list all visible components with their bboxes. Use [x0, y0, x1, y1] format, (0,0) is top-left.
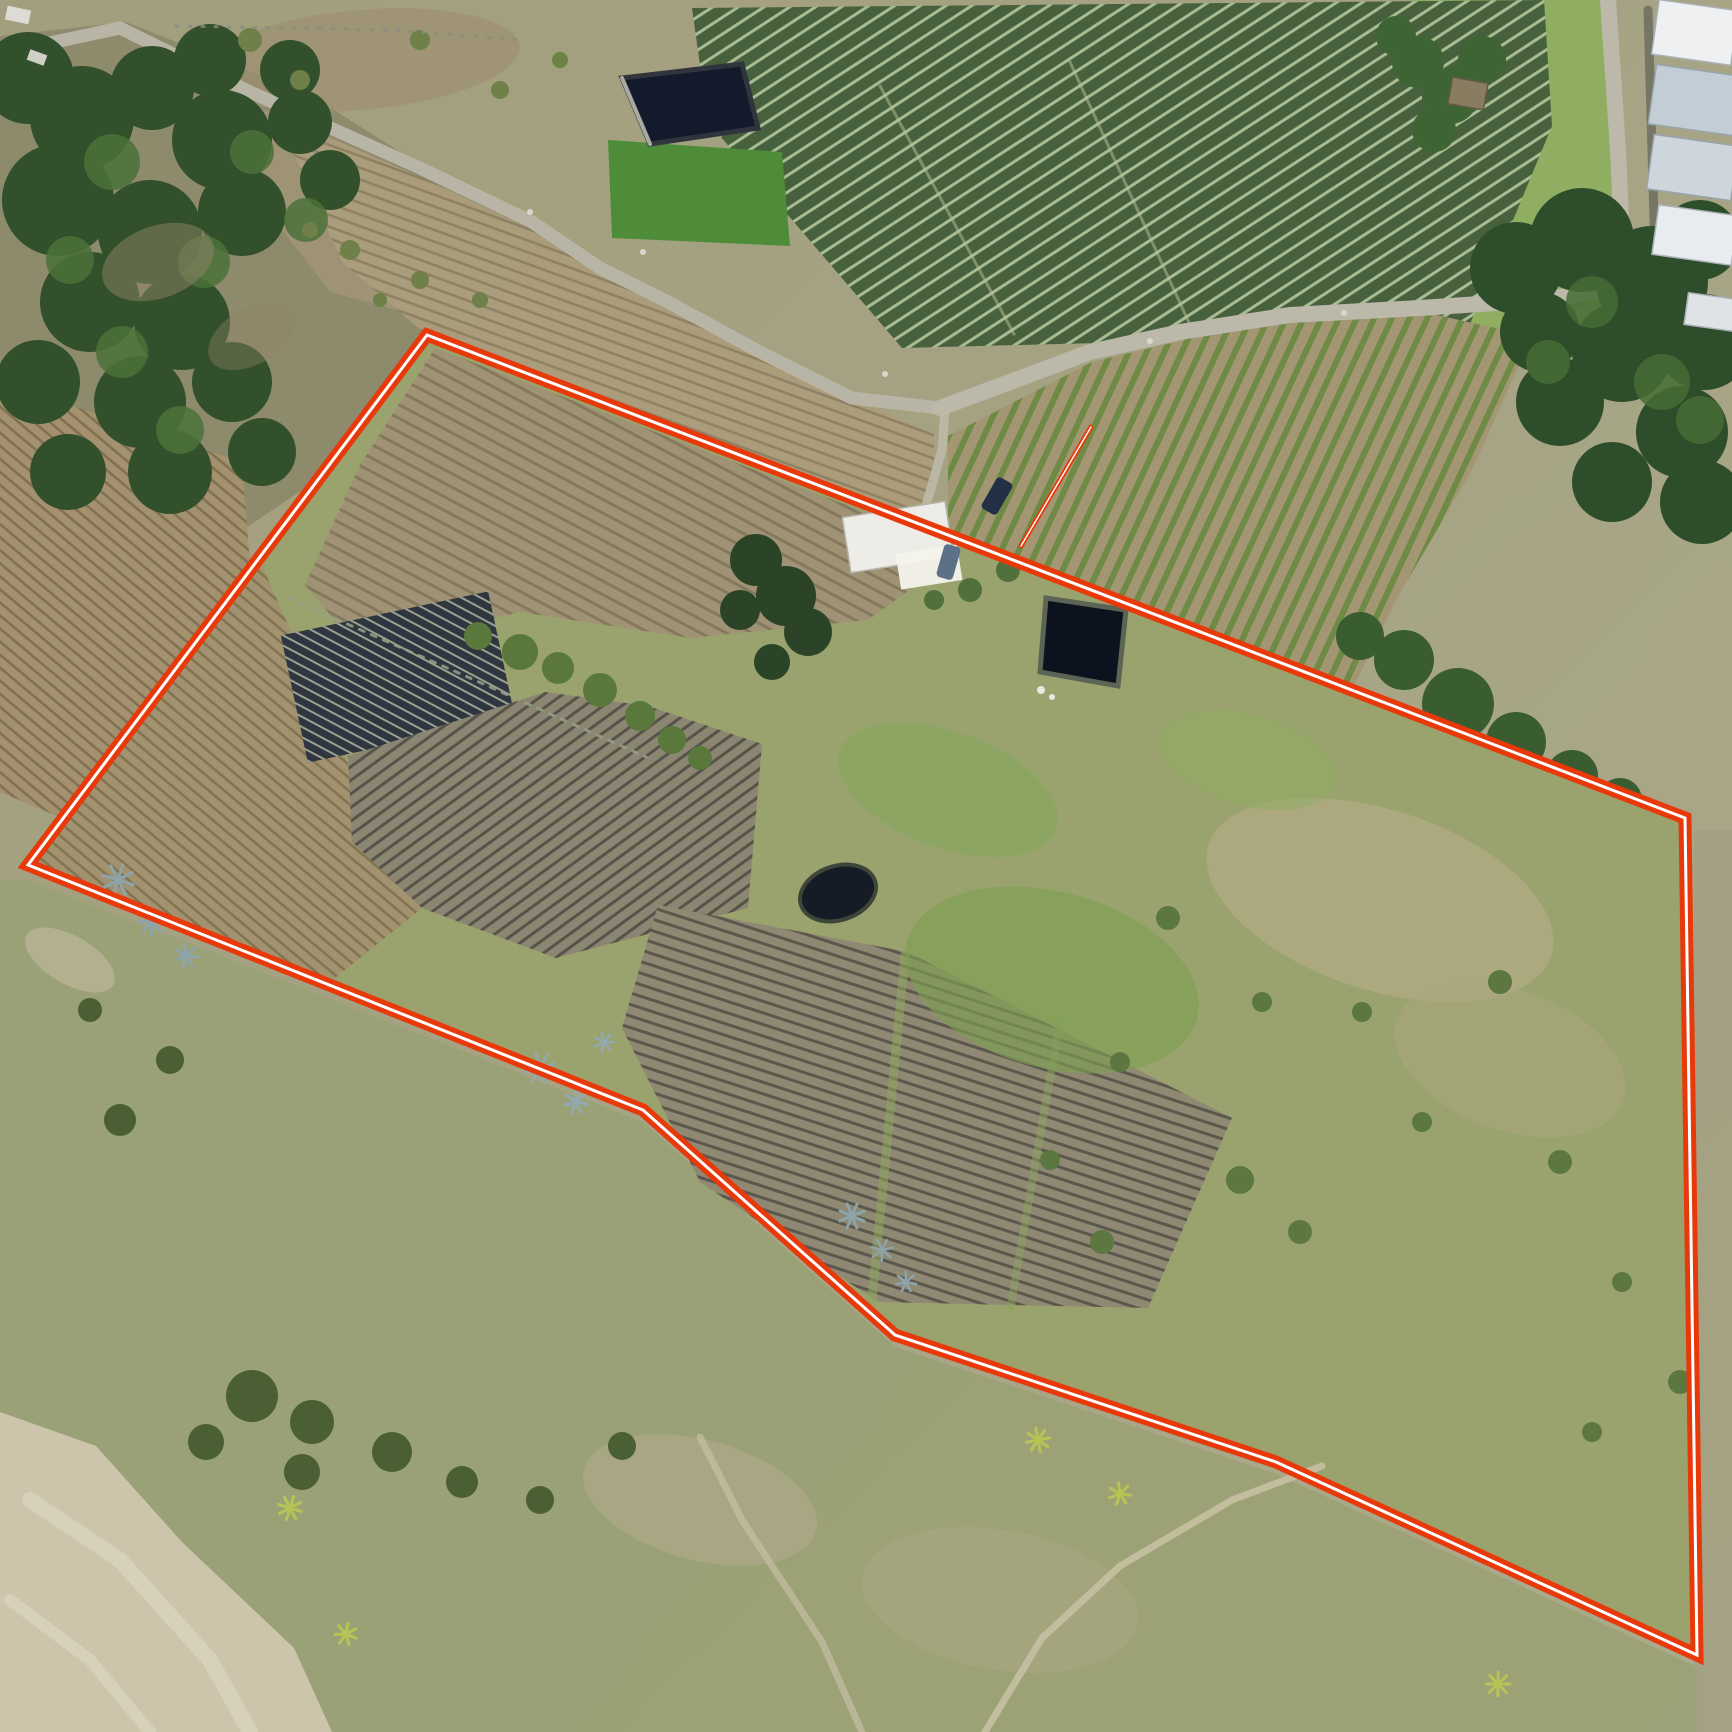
field-bright-green: [608, 140, 790, 246]
water-reservoir-mid: [1040, 598, 1126, 686]
greenhouse-roof-3: [1647, 134, 1732, 200]
greenhouse-roof-1: [1652, 0, 1732, 65]
drone-aerial-photo: [0, 0, 1732, 1732]
greenhouse-roof-4: [1652, 205, 1732, 266]
greenhouse-roof-2: [1648, 64, 1732, 135]
scene-root: [0, 0, 1732, 1732]
greenhouse-roof-5: [1684, 293, 1732, 332]
hut-small: [1448, 77, 1488, 110]
agave-yellow: [1486, 1672, 1510, 1696]
aerial-photo-property-listing: [0, 0, 1732, 1732]
reservoir-pond-upper: [622, 64, 758, 144]
